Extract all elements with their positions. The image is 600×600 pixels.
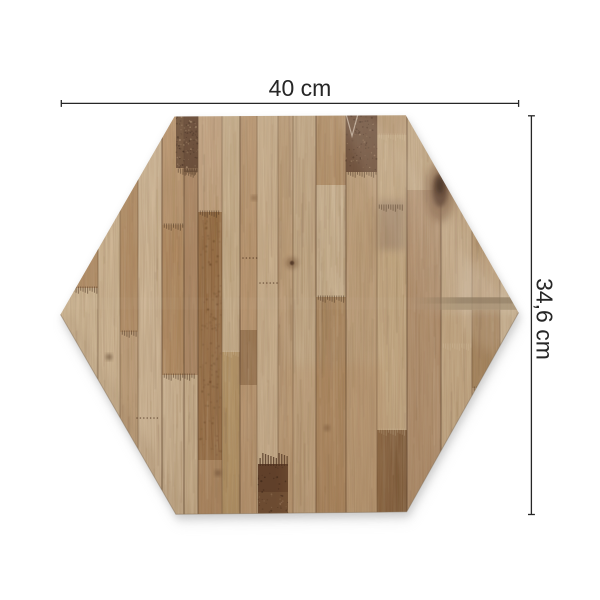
svg-text:34,6 cm: 34,6 cm (532, 278, 558, 360)
svg-text:40 cm: 40 cm (269, 75, 332, 101)
